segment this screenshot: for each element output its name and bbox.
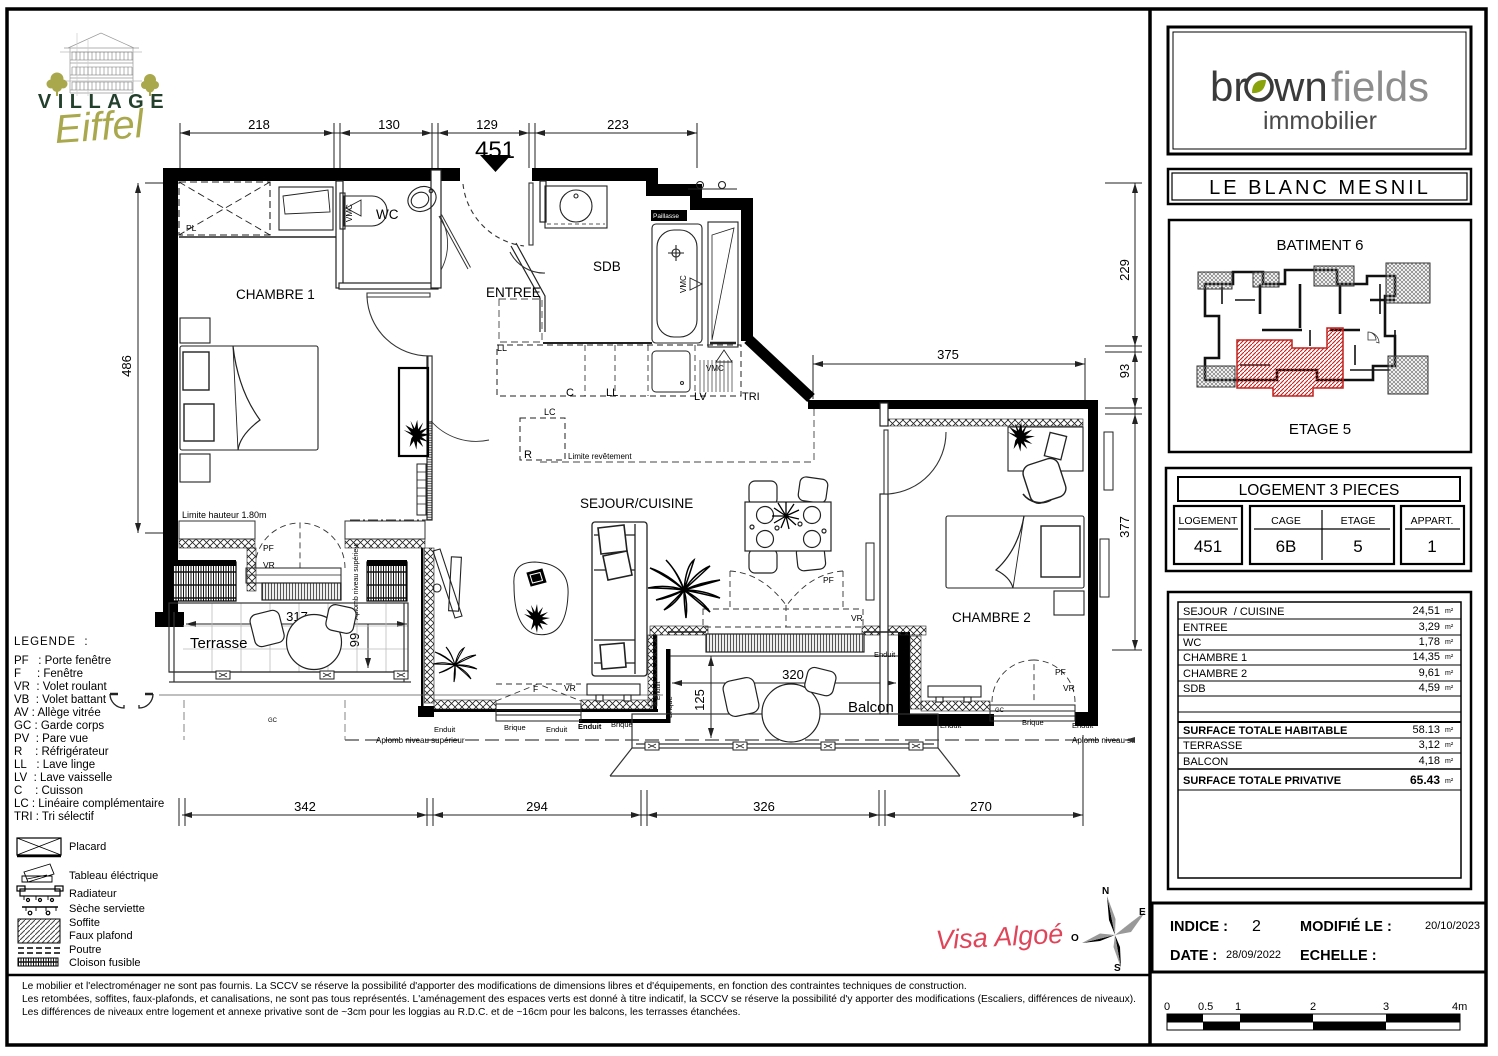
svg-text:270: 270 <box>970 799 992 814</box>
svg-text:Aplomb niveau supérieur: Aplomb niveau supérieur <box>353 542 360 620</box>
svg-text:m²: m² <box>1445 654 1454 661</box>
svg-text:immobilier: immobilier <box>1263 107 1377 135</box>
svg-text:Eiffel: Eiffel <box>53 102 146 152</box>
svg-text:BALCON: BALCON <box>1183 756 1228 768</box>
svg-text:CHAMBRE 1: CHAMBRE 1 <box>236 287 315 302</box>
svg-text:S: S <box>1114 963 1121 974</box>
svg-text:Enduit: Enduit <box>578 722 602 731</box>
svg-text:ENTREE: ENTREE <box>1183 622 1228 634</box>
svg-text:SURFACE TOTALE HABITABLE: SURFACE TOTALE HABITABLE <box>1183 725 1347 737</box>
svg-text:223: 223 <box>607 117 629 132</box>
svg-text:PF: PF <box>1055 667 1066 677</box>
svg-text:m²: m² <box>1445 727 1454 734</box>
svg-text:SDB: SDB <box>1183 683 1206 695</box>
svg-text:24,51: 24,51 <box>1412 605 1440 617</box>
svg-text:Aplomb niveau s.: Aplomb niveau s. <box>1072 736 1133 745</box>
svg-text:C: C <box>566 387 574 399</box>
svg-text:VMC: VMC <box>706 364 724 373</box>
svg-text:Limite hauteur 1.80m: Limite hauteur 1.80m <box>182 510 267 520</box>
svg-text:br: br <box>1210 63 1247 110</box>
svg-text:Brique: Brique <box>611 720 633 729</box>
svg-text:F : Fenêtre: F : Fenêtre <box>14 668 83 680</box>
svg-text:Sèche serviette: Sèche serviette <box>69 903 145 915</box>
svg-text:VR: VR <box>1063 683 1075 693</box>
svg-text:Les retombées, soffites, faux-: Les retombées, soffites, faux-plafonds, … <box>22 994 1136 1005</box>
svg-text:PV : Pare vue: PV : Pare vue <box>14 733 88 745</box>
svg-text:BATIMENT 6: BATIMENT 6 <box>1277 237 1364 254</box>
svg-text:ECHELLE :: ECHELLE : <box>1300 948 1377 964</box>
svg-text:Enduit: Enduit <box>655 681 662 700</box>
svg-text:3,12: 3,12 <box>1419 739 1440 751</box>
svg-text:Enduit: Enduit <box>940 721 962 730</box>
svg-text:VR: VR <box>851 613 863 623</box>
svg-text:99: 99 <box>347 633 362 647</box>
svg-text:Brique: Brique <box>1022 718 1044 727</box>
svg-text:LL : Lave linge: LL : Lave linge <box>14 759 95 771</box>
svg-text:Radiateur: Radiateur <box>69 888 117 900</box>
svg-text:ETAGE: ETAGE <box>1341 515 1376 527</box>
svg-text:Faux plafond: Faux plafond <box>69 930 133 942</box>
svg-text:229: 229 <box>1117 259 1132 281</box>
svg-text:Visa Algoé: Visa Algoé <box>935 919 1064 956</box>
svg-text:Aplomb niveau supérieur: Aplomb niveau supérieur <box>376 736 465 745</box>
svg-text:Brique: Brique <box>665 696 674 718</box>
svg-text:m²: m² <box>1445 608 1454 615</box>
svg-text:SDB: SDB <box>593 259 621 274</box>
svg-text:LV : Lave vaisselle: LV : Lave vaisselle <box>14 772 112 784</box>
svg-text:VMC: VMC <box>345 204 354 222</box>
svg-text:130: 130 <box>378 117 400 132</box>
svg-text:N: N <box>1102 886 1109 897</box>
svg-text:Le mobilier et l'electroménage: Le mobilier et l'electroménager ne sont … <box>22 981 967 992</box>
svg-text:1: 1 <box>1427 537 1436 556</box>
svg-text:LE BLANC MESNIL: LE BLANC MESNIL <box>1209 177 1431 199</box>
svg-text:5: 5 <box>1353 537 1362 556</box>
svg-text:93: 93 <box>1117 364 1132 378</box>
svg-text:218: 218 <box>248 117 270 132</box>
svg-text:28/09/2022: 28/09/2022 <box>1226 949 1281 961</box>
svg-text:4m: 4m <box>1452 1001 1467 1013</box>
svg-text:DATE :: DATE : <box>1170 948 1217 964</box>
svg-text:m²: m² <box>1445 742 1454 749</box>
svg-text:m²: m² <box>1445 685 1454 692</box>
svg-text:ENTREE: ENTREE <box>486 285 541 300</box>
svg-text:20/10/2023: 20/10/2023 <box>1425 920 1480 932</box>
svg-text:LL: LL <box>497 343 507 353</box>
svg-text:wn: wn <box>1273 63 1328 110</box>
svg-text:F: F <box>533 684 538 694</box>
svg-text:Enduit: Enduit <box>874 650 896 659</box>
svg-text:LOGEMENT: LOGEMENT <box>1179 515 1239 527</box>
svg-text:E: E <box>1139 907 1146 918</box>
svg-text:fields: fields <box>1331 63 1429 110</box>
svg-text:MODIFIÉ LE :: MODIFIÉ LE : <box>1300 918 1392 935</box>
svg-text:m²: m² <box>1445 778 1454 785</box>
svg-text:TRI : Tri sélectif: TRI : Tri sélectif <box>14 811 95 823</box>
svg-text:GC : Garde corps: GC : Garde corps <box>14 720 104 732</box>
svg-text:O: O <box>1071 933 1079 944</box>
svg-text:342: 342 <box>294 799 316 814</box>
svg-text:6B: 6B <box>1276 537 1297 556</box>
svg-text:INDICE :: INDICE : <box>1170 919 1228 935</box>
svg-text:326: 326 <box>753 799 775 814</box>
svg-text:486: 486 <box>119 355 134 377</box>
svg-text:LC : Linéaire complémentaire: LC : Linéaire complémentaire <box>14 798 164 810</box>
svg-text:SEJOUR / CUISINE: SEJOUR / CUISINE <box>1183 606 1284 618</box>
svg-text:TRI: TRI <box>742 391 760 403</box>
svg-text:375: 375 <box>937 347 959 362</box>
svg-text:LOGEMENT 3 PIECES: LOGEMENT 3 PIECES <box>1239 482 1400 499</box>
svg-text:Cloison fusible: Cloison fusible <box>69 957 141 969</box>
svg-text:ETAGE 5: ETAGE 5 <box>1289 421 1351 438</box>
svg-text:VR: VR <box>263 560 275 570</box>
svg-text:LV: LV <box>694 391 707 403</box>
svg-text:Tableau éléctrique: Tableau éléctrique <box>69 870 158 882</box>
svg-text:Paillasse: Paillasse <box>653 213 679 220</box>
svg-text:CHAMBRE 2: CHAMBRE 2 <box>952 610 1031 625</box>
svg-text:m²: m² <box>1445 670 1454 677</box>
svg-text:4,18: 4,18 <box>1419 755 1440 767</box>
svg-text:m²: m² <box>1445 624 1454 631</box>
svg-text:14,35: 14,35 <box>1412 651 1440 663</box>
svg-text:451: 451 <box>1194 537 1222 556</box>
svg-text:CHAMBRE 1: CHAMBRE 1 <box>1183 652 1247 664</box>
svg-text:GC: GC <box>995 708 1005 714</box>
svg-text:Brique: Brique <box>504 723 526 732</box>
svg-text:Enduit: Enduit <box>434 725 456 734</box>
svg-text:2: 2 <box>1252 918 1261 935</box>
svg-text:GC: GC <box>268 718 278 724</box>
svg-text:3: 3 <box>1383 1001 1389 1013</box>
svg-text:3,29: 3,29 <box>1419 621 1440 633</box>
svg-text:Les différences de niveaux ent: Les différences de niveaux entre logemen… <box>22 1007 740 1018</box>
svg-text:VMC: VMC <box>679 275 688 293</box>
svg-text:APPART.: APPART. <box>1411 515 1454 527</box>
svg-text:AV : Allège vitrée: AV : Allège vitrée <box>14 707 101 719</box>
svg-text:9,61: 9,61 <box>1419 667 1440 679</box>
svg-text:4,59: 4,59 <box>1419 682 1440 694</box>
svg-text:m²: m² <box>1445 758 1454 765</box>
svg-text:LC: LC <box>544 407 556 417</box>
svg-text:Limite revêtement: Limite revêtement <box>568 452 632 461</box>
svg-text:SURFACE TOTALE PRIVATIVE: SURFACE TOTALE PRIVATIVE <box>1183 775 1341 787</box>
svg-text:Placard: Placard <box>69 841 106 853</box>
svg-text:VR : Volet roulant: VR : Volet roulant <box>14 681 107 693</box>
svg-text:125: 125 <box>692 689 707 711</box>
svg-text:58.13: 58.13 <box>1412 724 1440 736</box>
svg-text:VB : Volet battant: VB : Volet battant <box>14 694 107 706</box>
svg-text:377: 377 <box>1117 516 1132 538</box>
svg-text:0: 0 <box>1164 1001 1170 1013</box>
svg-text:Poutre: Poutre <box>69 944 101 956</box>
svg-text:Enduit: Enduit <box>546 725 568 734</box>
svg-text:PF : Porte fenêtre: PF : Porte fenêtre <box>14 655 111 667</box>
svg-text:R: R <box>524 449 532 461</box>
svg-text:Terrasse: Terrasse <box>190 635 248 652</box>
svg-text:m²: m² <box>1445 639 1454 646</box>
svg-text:0.5: 0.5 <box>1198 1001 1213 1013</box>
svg-text:129: 129 <box>476 117 498 132</box>
svg-text:Balcon: Balcon <box>848 699 894 716</box>
svg-text:2: 2 <box>1310 1001 1316 1013</box>
svg-text:PF: PF <box>263 543 274 553</box>
svg-text:Soffite: Soffite <box>69 917 100 929</box>
svg-text:CAGE: CAGE <box>1271 515 1301 527</box>
svg-text:294: 294 <box>526 799 548 814</box>
svg-text:LL: LL <box>606 387 618 399</box>
svg-text:C : Cuisson: C : Cuisson <box>14 785 83 797</box>
svg-text:VR: VR <box>564 683 576 693</box>
svg-text:LEGENDE :: LEGENDE : <box>14 636 89 648</box>
svg-text:CHAMBRE 2: CHAMBRE 2 <box>1183 668 1247 680</box>
svg-text:PF: PF <box>823 575 834 585</box>
svg-text:1: 1 <box>1235 1001 1241 1013</box>
svg-text:R : Réfrigérateur: R : Réfrigérateur <box>14 746 109 758</box>
svg-text:320: 320 <box>782 667 804 682</box>
svg-text:TERRASSE: TERRASSE <box>1183 740 1242 752</box>
svg-text:65.43: 65.43 <box>1410 773 1440 787</box>
svg-text:1,78: 1,78 <box>1419 636 1440 648</box>
svg-text:WC: WC <box>1183 637 1201 649</box>
svg-text:Enduit: Enduit <box>1072 721 1094 730</box>
svg-text:SEJOUR/CUISINE: SEJOUR/CUISINE <box>580 496 693 511</box>
